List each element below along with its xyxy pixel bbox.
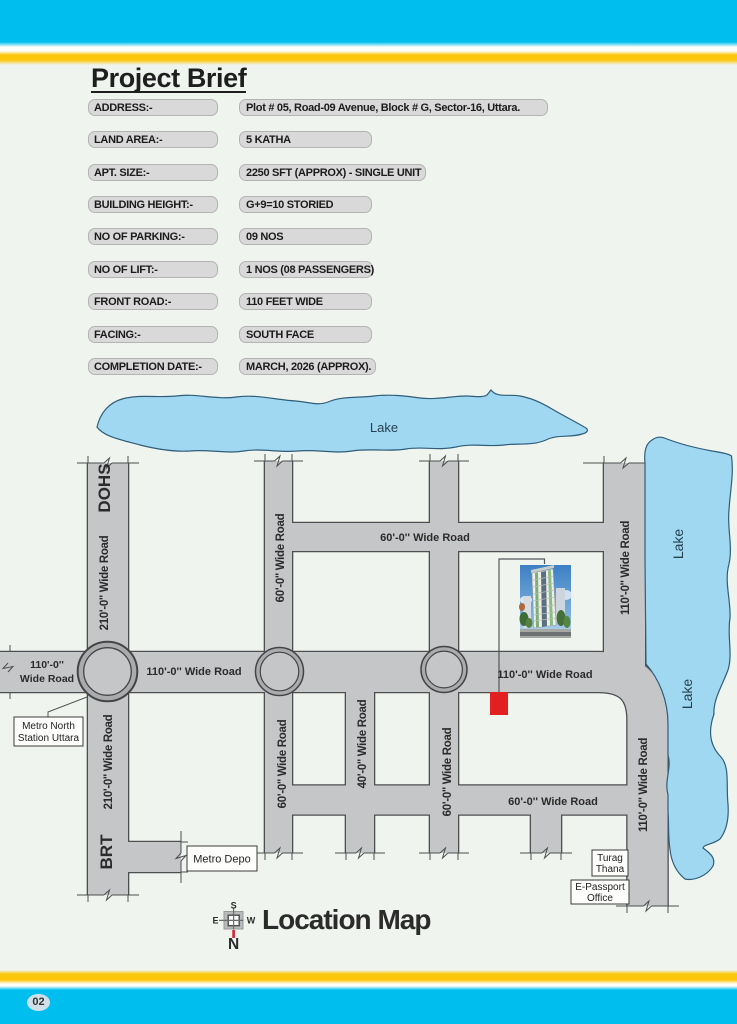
svg-text:110'-0'' Wide Road: 110'-0'' Wide Road	[497, 669, 592, 681]
svg-text:110'-0'' Wide Road: 110'-0'' Wide Road	[638, 738, 650, 832]
svg-text:60'-0'' Wide Road: 60'-0'' Wide Road	[508, 796, 598, 808]
svg-text:60'-0'' Wide Road: 60'-0'' Wide Road	[380, 532, 470, 544]
svg-text:Lake: Lake	[679, 679, 695, 710]
svg-text:Office: Office	[587, 893, 613, 904]
svg-text:60'-0'' Wide Road: 60'-0'' Wide Road	[442, 727, 454, 816]
svg-text:210'-0'' Wide Road: 210'-0'' Wide Road	[99, 535, 111, 630]
svg-text:Lake: Lake	[670, 529, 686, 560]
svg-text:N: N	[228, 936, 239, 953]
svg-text:BRT: BRT	[97, 834, 116, 870]
svg-text:DOHS: DOHS	[95, 463, 114, 512]
svg-text:S: S	[231, 901, 237, 911]
svg-text:Thana: Thana	[596, 864, 625, 875]
svg-text:60'-0'' Wide Road: 60'-0'' Wide Road	[275, 513, 287, 602]
svg-text:60'-0'' Wide Road: 60'-0'' Wide Road	[277, 719, 289, 808]
svg-text:Metro North: Metro North	[22, 721, 75, 732]
svg-text:Lake: Lake	[370, 420, 398, 435]
svg-text:40'-0'' Wide Road: 40'-0'' Wide Road	[357, 699, 369, 788]
svg-text:W: W	[247, 916, 256, 926]
svg-text:E-Passport: E-Passport	[575, 882, 625, 893]
svg-text:Location Map: Location Map	[262, 904, 430, 935]
svg-text:E: E	[212, 916, 218, 926]
svg-text:110'-0'' Wide Road: 110'-0'' Wide Road	[620, 521, 632, 615]
svg-text:Turag: Turag	[597, 853, 623, 864]
svg-text:110'-0'' Wide Road: 110'-0'' Wide Road	[146, 666, 241, 678]
svg-text:210'-0'' Wide Road: 210'-0'' Wide Road	[103, 714, 115, 809]
svg-text:Wide Road: Wide Road	[20, 673, 74, 685]
svg-text:Station Uttara: Station Uttara	[18, 733, 80, 744]
svg-text:110'-0'': 110'-0''	[30, 659, 64, 671]
svg-text:Metro Depo: Metro Depo	[193, 854, 250, 866]
